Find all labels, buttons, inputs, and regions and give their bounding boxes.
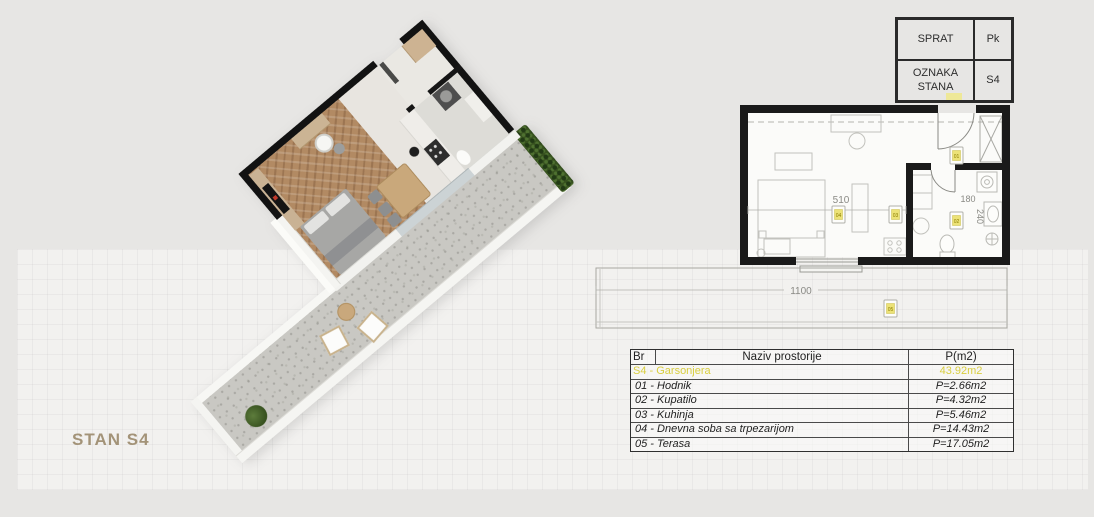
meta-value-oznaka: S4: [974, 60, 1012, 101]
area-table: Br Naziv prostorije P(m2) S4 - Garsonjer…: [630, 349, 1014, 452]
wall-left: [740, 105, 748, 265]
wall-bottom: [740, 257, 796, 265]
table-row: 04 - Dnevna soba sa trpezarijom P=14.43m…: [631, 422, 1013, 437]
room-name: 03 - Kuhinja: [631, 409, 908, 423]
table-row: 02 - Kupatilo P=4.32m2: [631, 393, 1013, 408]
area-table-header: Br Naziv prostorije P(m2): [631, 350, 1013, 364]
wall-top: [740, 105, 938, 113]
partition-wall: [906, 163, 913, 257]
svg-text:05: 05: [888, 307, 894, 313]
table-row: 05 - Terasa P=17.05m2: [631, 437, 1013, 452]
dim-1100: 1100: [790, 286, 812, 297]
wall-bottom: [858, 257, 1010, 265]
marker-kitchen: 03: [889, 206, 902, 223]
svg-text:01: 01: [954, 154, 960, 160]
terrace-outline: [596, 268, 1007, 328]
marker-terrace: 05: [884, 300, 897, 317]
room-name: 02 - Kupatilo: [631, 394, 908, 408]
floor-plan-2d: 510 180 240 1100 04 03 01: [588, 92, 1020, 342]
svg-text:02: 02: [954, 219, 960, 225]
header-br: Br: [631, 350, 656, 364]
header-area: P(m2): [908, 350, 1013, 364]
dim-240: 240: [975, 209, 985, 224]
room-name: 04 - Dnevna soba sa trpezarijom: [631, 423, 908, 437]
room-area: P=17.05m2: [908, 438, 1013, 452]
meta-label-oznaka: OZNAKA STANA: [897, 60, 974, 101]
table-row: 03 - Kuhinja P=5.46m2: [631, 408, 1013, 423]
room-area: P=14.43m2: [908, 423, 1013, 437]
dim-510: 510: [833, 195, 850, 206]
marker-bath: 02: [950, 212, 963, 229]
plan-interior: [748, 113, 1002, 257]
meta-table: SPRAT Pk OZNAKA STANA S4: [895, 17, 1014, 103]
washing-machine-outline: [977, 172, 997, 192]
svg-text:04: 04: [836, 213, 842, 219]
meta-value-sprat: Pk: [974, 19, 1012, 60]
wall-right: [1002, 105, 1010, 265]
room-name: 01 - Hodnik: [631, 380, 908, 394]
summary-name: S4 - Garsonjera: [631, 365, 908, 379]
dim-180: 180: [960, 194, 975, 204]
slider-elevation: [800, 266, 862, 272]
marker-hall: 01: [950, 147, 963, 164]
room-area: P=4.32m2: [908, 394, 1013, 408]
room-area: P=2.66m2: [908, 380, 1013, 394]
marker-living: 04: [832, 206, 845, 223]
table-row: 01 - Hodnik P=2.66m2: [631, 379, 1013, 394]
room-name: 05 - Terasa: [631, 438, 908, 452]
room-area: P=5.46m2: [908, 409, 1013, 423]
toilet-outline: [940, 235, 954, 253]
summary-area: 43.92m2: [908, 365, 1013, 379]
partition-wall: [913, 163, 931, 170]
header-name: Naziv prostorije: [656, 350, 908, 364]
page-title: STAN S4: [72, 430, 150, 450]
meta-label-sprat: SPRAT: [897, 19, 974, 60]
area-table-summary-row: S4 - Garsonjera 43.92m2: [631, 364, 1013, 379]
svg-text:03: 03: [893, 213, 899, 219]
